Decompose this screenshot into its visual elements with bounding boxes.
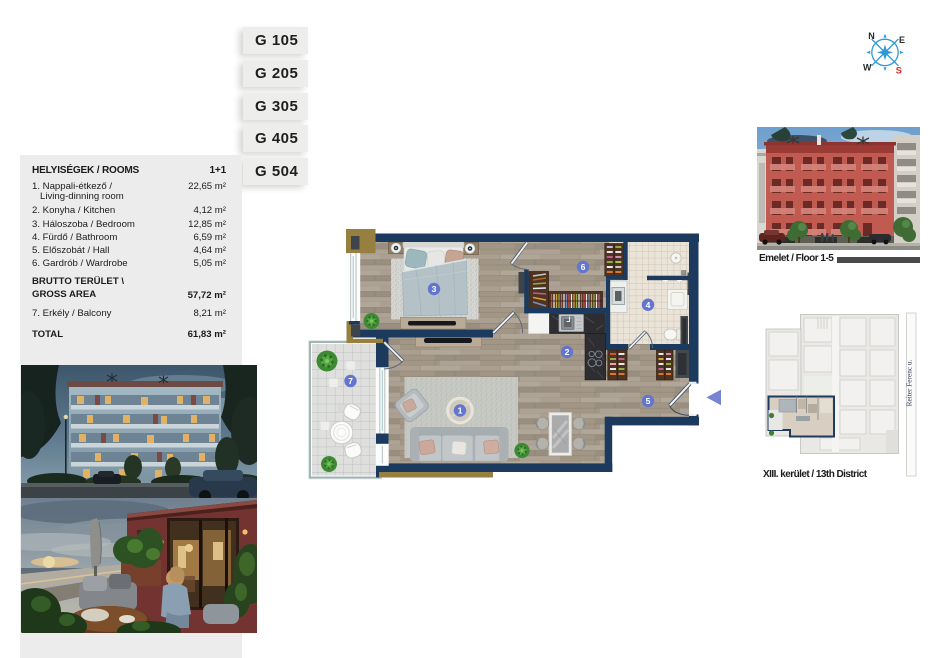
svg-text:7: 7 [348,376,353,386]
svg-text:5: 5 [646,396,651,406]
svg-text:N: N [868,31,875,41]
svg-text:1: 1 [458,406,463,416]
svg-text:3: 3 [432,284,437,294]
svg-text:4: 4 [646,300,651,310]
svg-text:6: 6 [581,262,586,272]
svg-text:S: S [896,65,902,75]
svg-text:W: W [863,62,872,72]
svg-text:E: E [899,35,905,45]
svg-text:2: 2 [565,347,570,357]
svg-text:Reiter Ferenc u.: Reiter Ferenc u. [905,359,914,406]
